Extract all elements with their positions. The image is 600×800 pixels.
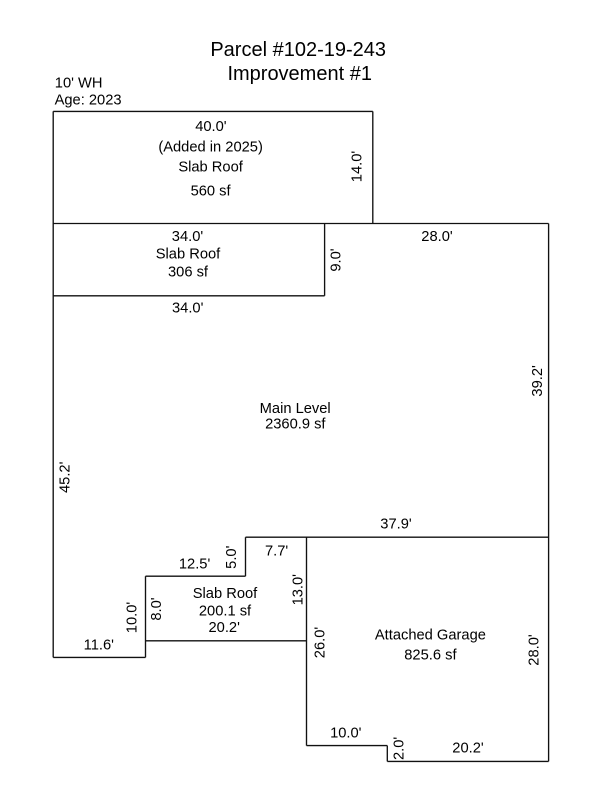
svg-text:8.0': 8.0' — [149, 597, 165, 620]
svg-text:10' WH: 10' WH — [55, 76, 103, 92]
svg-text:Parcel #102-19-243: Parcel #102-19-243 — [210, 39, 386, 61]
svg-text:2360.9 sf: 2360.9 sf — [265, 416, 326, 432]
svg-text:9.0': 9.0' — [329, 248, 345, 271]
svg-text:39.2': 39.2' — [530, 365, 546, 397]
svg-text:7.7': 7.7' — [265, 544, 288, 560]
svg-text:28.0': 28.0' — [527, 634, 543, 666]
svg-text:40.0': 40.0' — [195, 119, 227, 135]
svg-text:10.0': 10.0' — [124, 602, 140, 634]
svg-text:Attached Garage: Attached Garage — [375, 627, 486, 643]
svg-text:37.9': 37.9' — [380, 517, 412, 533]
svg-text:20.2': 20.2' — [209, 620, 241, 636]
svg-text:5.0': 5.0' — [224, 545, 240, 568]
svg-text:26.0': 26.0' — [312, 627, 328, 659]
svg-text:12.5': 12.5' — [179, 557, 211, 573]
svg-text:45.2': 45.2' — [57, 461, 73, 493]
svg-text:200.1 sf: 200.1 sf — [199, 604, 252, 620]
svg-text:2.0': 2.0' — [392, 737, 408, 760]
svg-text:(Added in 2025): (Added in 2025) — [158, 139, 263, 155]
svg-text:20.2': 20.2' — [452, 740, 484, 756]
svg-text:34.0': 34.0' — [172, 300, 204, 316]
svg-text:560 sf: 560 sf — [191, 183, 232, 199]
svg-text:Slab Roof: Slab Roof — [156, 246, 221, 262]
svg-text:10.0': 10.0' — [330, 726, 362, 742]
svg-text:Improvement #1: Improvement #1 — [227, 63, 372, 85]
svg-text:13.0': 13.0' — [290, 574, 306, 606]
svg-text:Slab Roof: Slab Roof — [178, 159, 243, 175]
svg-text:306 sf: 306 sf — [168, 265, 209, 281]
svg-text:Slab Roof: Slab Roof — [193, 586, 258, 602]
svg-text:34.0': 34.0' — [172, 229, 204, 245]
svg-text:28.0': 28.0' — [421, 229, 453, 245]
svg-text:825.6 sf: 825.6 sf — [404, 647, 457, 663]
svg-text:Age: 2023: Age: 2023 — [55, 92, 122, 108]
svg-text:Main Level: Main Level — [260, 401, 331, 417]
svg-text:11.6': 11.6' — [84, 638, 114, 654]
svg-text:14.0': 14.0' — [349, 151, 365, 183]
